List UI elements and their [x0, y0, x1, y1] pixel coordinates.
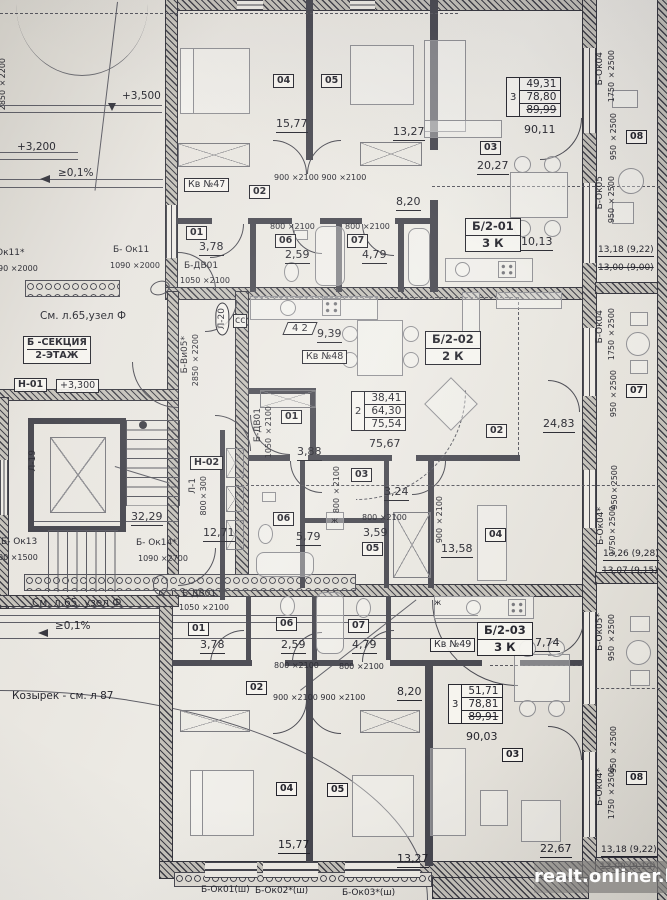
area-old: 89,99 — [520, 104, 560, 116]
area-living: 49,31 — [520, 78, 560, 91]
flat-number-box: Кв №49 — [430, 638, 475, 652]
l20-label: Л-20 — [215, 302, 229, 335]
window — [0, 460, 8, 515]
coffee-table — [480, 790, 508, 826]
section-floor: 2-ЭТАЖ — [27, 349, 87, 362]
door-arc — [273, 700, 307, 734]
door-label: Б-ДВ01 — [184, 261, 218, 271]
window — [263, 862, 318, 878]
sofa — [424, 40, 466, 132]
balcony-number: 07 — [626, 384, 647, 398]
tub — [256, 552, 314, 577]
room-number: 01 — [188, 622, 209, 636]
balcony-table — [626, 332, 650, 356]
room-area: 3,78 — [200, 639, 225, 654]
room-number: 06 — [276, 617, 297, 631]
slope-line — [0, 187, 163, 188]
door-size: 900 ×2100 900 ×2100 — [273, 693, 365, 702]
door-size: 1050 ×2100 — [264, 406, 273, 458]
window-label: Ок11* — [0, 248, 24, 258]
flat-number-box: Кв №47 — [184, 178, 229, 192]
kitchen-counter — [250, 296, 378, 320]
room-number: 07 — [348, 619, 369, 633]
room-number: 04 — [485, 528, 506, 542]
window — [205, 862, 257, 878]
node-note: См. л.65, узел Ф — [32, 597, 121, 609]
partition — [176, 218, 212, 224]
chair — [403, 326, 419, 342]
balcony-dim: 13,26 (9,28) — [603, 549, 659, 561]
door-size: 800 ×2100 — [362, 513, 407, 522]
door-size: 900 ×2100 900 ×2100 — [274, 173, 366, 182]
room-number: 02 — [249, 185, 270, 199]
stair-flight-upper — [126, 420, 180, 506]
rooms-count: 3 — [449, 685, 462, 723]
section-name: Б -СЕКЦИЯ — [27, 337, 87, 349]
table — [510, 172, 568, 218]
stair-flight-lower — [48, 530, 118, 592]
room-number: 05 — [362, 542, 383, 556]
room-number: 03 — [480, 141, 501, 155]
window-label: Б-Ок04* — [596, 507, 606, 545]
room-marker-text: 4 2 — [292, 323, 308, 334]
l1-size: 800×300 — [199, 476, 208, 516]
window-label: Б- Ок11 — [113, 245, 149, 255]
room-area: 22,67 — [540, 843, 572, 858]
door-arc — [548, 726, 582, 760]
room-number: 02 — [246, 681, 267, 695]
canopy-curve-top — [16, 4, 148, 76]
tv-stand — [521, 800, 561, 842]
corridor-area: 12,71 — [203, 527, 235, 542]
room-area: 2,59 — [285, 249, 310, 264]
area-old: 75,54 — [365, 418, 405, 430]
bed — [350, 45, 414, 105]
chair — [548, 700, 565, 717]
window-label: Б-Ок01(ш) — [201, 885, 250, 895]
room-area: 7,74 — [535, 637, 560, 652]
window-size: 2850 ×2200 — [191, 334, 200, 386]
cc-box: сс — [233, 314, 247, 328]
partition — [306, 0, 313, 160]
chair — [342, 326, 358, 342]
area-old: 89,91 — [462, 711, 502, 723]
tub — [316, 592, 344, 654]
balcony-table — [618, 168, 644, 194]
room-number: 06 — [275, 234, 296, 248]
door-arc — [273, 140, 307, 174]
unit-id: Б/2-03 — [478, 623, 532, 639]
room-area: 9,39 — [317, 328, 342, 343]
toilet — [280, 596, 295, 616]
window-label: Б-Ок03*(ш) — [342, 888, 395, 898]
level-line — [0, 112, 162, 113]
area-table: 2 38,41 64,30 75,54 — [351, 391, 406, 431]
door-size: 800 ×2100 — [274, 661, 319, 670]
balcony-item — [630, 670, 650, 686]
slope-line — [0, 179, 163, 180]
sofa — [496, 292, 562, 309]
wall — [160, 585, 172, 878]
room-number: 05 — [327, 783, 348, 797]
sofa — [424, 120, 502, 138]
sink — [280, 300, 296, 316]
door-size: 900 ×2100 — [435, 496, 444, 543]
door-arc — [132, 362, 178, 408]
toilet — [356, 598, 371, 618]
room-area: 3,59 — [363, 527, 388, 540]
unit-box: Б/2-02 2 К — [425, 331, 481, 365]
window-label: Б-Ок05 — [595, 176, 605, 209]
room-number: 06 — [273, 512, 294, 526]
room-area: 4,79 — [352, 639, 377, 654]
window-label: Б-Ви05* — [180, 336, 190, 373]
level-line — [0, 105, 162, 106]
chair — [544, 156, 561, 173]
kitchen-zone-line — [518, 297, 519, 455]
bed-pillow — [180, 48, 194, 114]
unit-id: Б/2-02 — [426, 332, 480, 348]
section-box: Б -СЕКЦИЯ 2-ЭТАЖ — [23, 336, 91, 364]
tub — [315, 226, 345, 286]
room-area: 2,59 — [281, 639, 306, 654]
partition — [430, 200, 438, 292]
window — [166, 205, 177, 258]
window-label: Б-Ок05* — [595, 613, 605, 651]
room-area: 15,77 — [276, 118, 308, 133]
room-area: 3,78 — [199, 241, 224, 256]
sink — [262, 492, 276, 502]
balcony-divider — [596, 283, 660, 293]
chair — [403, 352, 419, 368]
window-size: 950 ×2500 — [607, 176, 616, 223]
unit-box: Б/2-01 3 К — [465, 218, 521, 252]
window-size: 1090 ×2700 — [138, 554, 188, 563]
window-size: 00 ×1500 — [0, 553, 38, 562]
l1-label: Л-1 — [188, 478, 198, 494]
table — [357, 320, 403, 376]
tub — [408, 228, 430, 286]
shaft — [226, 486, 244, 512]
door-arc — [290, 461, 322, 493]
wardrobe — [178, 143, 250, 167]
window-size: 950 ×2500 — [609, 370, 618, 417]
room-number: 04 — [276, 782, 297, 796]
partition — [398, 224, 404, 292]
area-table: 3 51,71 78,81 89,91 — [448, 684, 503, 724]
window-size: 950 ×2500 — [609, 113, 618, 160]
window-size: 1750 ×2500 — [607, 308, 616, 360]
room-area: 8,20 — [397, 686, 422, 701]
door-size: 800 ×2100 — [332, 466, 341, 513]
table — [514, 654, 570, 702]
unit-rooms: 3 К — [466, 235, 520, 252]
sink — [455, 262, 470, 277]
door-size: 800 ×2100 — [339, 662, 384, 671]
area-living: 51,71 — [462, 685, 502, 698]
site-boundary-line — [0, 13, 458, 14]
stove — [508, 599, 526, 616]
window-label: Б-Ок04 — [595, 52, 605, 85]
area-total: 78,80 — [520, 91, 560, 104]
sink — [466, 600, 481, 615]
canopy-note: Козырек - см. л 87 — [12, 690, 113, 702]
room-number: 01 — [281, 410, 302, 424]
room-number: 03 — [351, 468, 372, 482]
area-grand-total: 90,11 — [524, 124, 556, 137]
window-label: Б-Ок04 — [595, 310, 605, 343]
balcony-dim-old: 13,07 (9,15) — [602, 566, 658, 576]
area-grand-total: 75,67 — [369, 438, 401, 451]
unit-rooms: 2 К — [426, 348, 480, 365]
area-grand-total: 90,03 — [466, 731, 498, 744]
room-area: 5,79 — [296, 531, 321, 546]
rooms-count: 3 — [507, 78, 520, 116]
balcony-item — [630, 360, 648, 374]
room-area: 24,83 — [543, 418, 575, 433]
window-size: 950 ×2500 — [607, 614, 616, 661]
balcony-item — [630, 312, 648, 326]
wardrobe — [360, 142, 422, 166]
slope-arrow — [38, 629, 48, 637]
toilet — [258, 524, 273, 544]
elevation-label: +3,200 — [17, 141, 56, 153]
node-marker — [153, 575, 168, 595]
lift-cab — [50, 437, 106, 513]
wall — [166, 0, 590, 10]
bed — [352, 775, 414, 837]
door-size: 1050 ×2100 — [179, 603, 229, 612]
area-total: 78,81 — [462, 698, 502, 711]
slope-arrow — [40, 175, 50, 183]
window-label: Б- Ок13 — [1, 537, 37, 547]
area-total: 64,30 — [365, 405, 405, 418]
door-label: Б-ДВ01 — [182, 589, 216, 599]
elevation-label: +3,500 — [122, 90, 161, 102]
flat-number-box: Кв №48 — [302, 350, 347, 364]
washer-mark: ж — [331, 516, 338, 525]
room-area: 4,79 — [362, 249, 387, 264]
wardrobe — [180, 710, 250, 732]
elevation-arrow — [108, 103, 116, 111]
h01-box: Н-01 — [14, 378, 47, 392]
axis-line — [596, 688, 660, 689]
toilet — [284, 262, 299, 282]
room-number: 07 — [347, 234, 368, 248]
window-size: 1090 ×2000 — [110, 261, 160, 270]
stair-start-dot — [139, 421, 147, 429]
area-table: 3 49,31 78,80 89,99 — [506, 77, 561, 117]
window-size: 950×2500 — [610, 465, 619, 510]
room-area: 13,27 — [393, 126, 425, 141]
watermark: realt.onliner.by — [534, 861, 667, 893]
room-area: 8,20 — [396, 196, 421, 211]
unit-rooms: 3 К — [478, 639, 532, 656]
window-size: 1750 ×2500 — [607, 767, 616, 819]
room-area: 13,58 — [441, 543, 473, 558]
room-number: 02 — [486, 424, 507, 438]
washer-mark: ж — [434, 598, 441, 607]
node-band — [26, 281, 119, 296]
rooms-count: 2 — [352, 392, 365, 430]
level-line — [0, 159, 78, 160]
door-size: 1050 ×2100 — [180, 276, 230, 285]
floor-plan-photo: +3,500 +3,200 ≥0,1% ≥0,1% 2850 ×2200 См.… — [0, 0, 667, 900]
room-area: 13,27 — [397, 853, 429, 868]
window — [583, 470, 596, 528]
window-size: 1750 ×2500 — [607, 50, 616, 102]
bed — [477, 505, 507, 581]
balcony-dim-old: 13,00 (9,00) — [598, 263, 654, 273]
room-area: 20,27 — [477, 160, 509, 175]
shaft — [226, 448, 244, 478]
window-label: Б-Ок04* — [595, 768, 605, 806]
dim-label: 2850 ×2200 — [0, 58, 7, 110]
stairs-area: 32,29 — [131, 511, 163, 526]
room-number: 03 — [502, 748, 523, 762]
room-area: 3,88 — [297, 446, 322, 461]
chair — [514, 156, 531, 173]
door-arc — [548, 380, 580, 412]
door-label: Б-ДВ01 — [253, 408, 263, 442]
door-size: 800 ×2100 — [270, 222, 315, 231]
partition — [250, 218, 256, 292]
room-number: 04 — [273, 74, 294, 88]
balcony-dim: 13,18 (9,22) — [601, 845, 657, 857]
partition — [246, 596, 251, 660]
balcony-dim: 13,18 (9,22) — [598, 245, 654, 257]
balcony-table — [626, 640, 651, 665]
room-number: 01 — [186, 226, 207, 240]
balcony-rail — [658, 0, 667, 900]
window-size: 90 ×2000 — [0, 264, 38, 273]
room-marker: 4 2 — [282, 322, 317, 335]
bed-pillow — [190, 770, 203, 836]
axis-line — [236, 485, 660, 486]
sofa — [430, 748, 466, 836]
balcony-door-opening — [237, 0, 263, 10]
balcony-number: 08 — [626, 771, 647, 785]
room-number: 05 — [321, 74, 342, 88]
balcony-item — [630, 616, 650, 632]
unit-box: Б/2-03 3 К — [477, 622, 533, 656]
area-living: 38,41 — [365, 392, 405, 405]
h02-box: Н-02 — [190, 456, 223, 470]
window-label: Б- Ок14* — [136, 538, 177, 548]
chair — [519, 700, 536, 717]
stove — [322, 298, 341, 316]
balcony-number: 08 — [626, 130, 647, 144]
l19-label: Л-19 — [28, 450, 38, 471]
stove — [498, 261, 516, 278]
room-area: 3,24 — [384, 486, 409, 501]
node-note: См. л.65,узел Ф — [40, 310, 126, 322]
h01-elev-box: +3,300 — [56, 379, 99, 393]
site-line — [0, 615, 478, 616]
slope-label: ≥0,1% — [58, 167, 93, 179]
window-label: Б-Ок02*(ш) — [255, 886, 308, 896]
room-area: 10,13 — [521, 236, 553, 251]
unit-id: Б/2-01 — [466, 219, 520, 235]
room-area: 15,77 — [278, 839, 310, 854]
slope-label: ≥0,1% — [55, 620, 90, 632]
wardrobe — [360, 710, 420, 733]
balcony-door-opening — [350, 0, 375, 10]
door-size: 800 ×2100 — [345, 222, 390, 231]
